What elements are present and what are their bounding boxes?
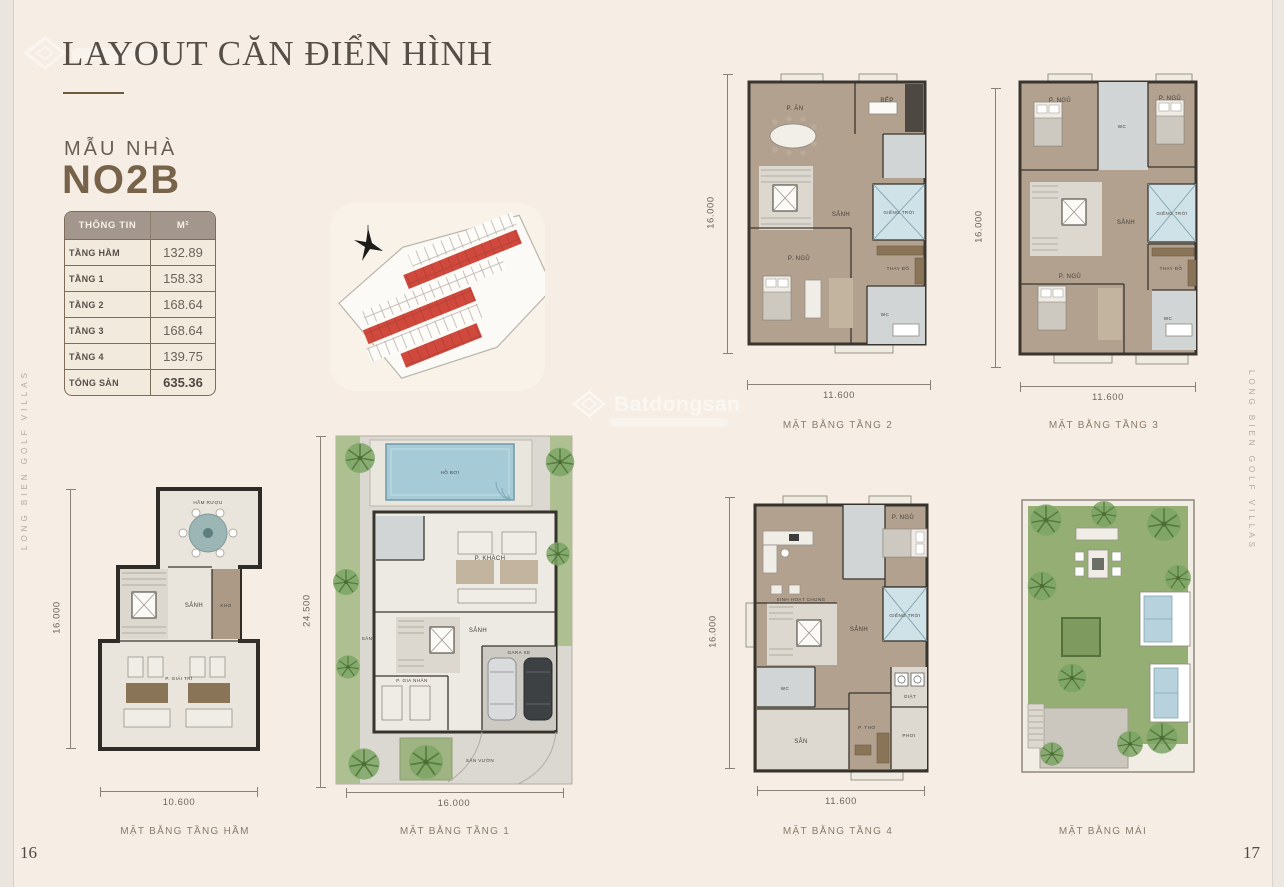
floor1-horizontal-dim (346, 792, 564, 793)
room-label-wc: WC (881, 312, 890, 317)
room-label-wc1: WC (1118, 124, 1127, 129)
page-number-left: 16 (20, 843, 37, 863)
bed (1156, 100, 1184, 144)
row-value: 168.64 (151, 318, 216, 344)
floor4-plan: SINH HOẠT CHUNG P. NGỦ GIẾNG TRỜI SẢNH W… (743, 493, 939, 783)
bed (883, 529, 927, 557)
floor4-vertical-dim (729, 497, 730, 769)
room-label-dressing: THAY ĐỒ (1160, 265, 1183, 271)
rug (1098, 288, 1122, 340)
floor3-horizontal-dim-label: 11.600 (1058, 392, 1158, 403)
roof-plan (1012, 490, 1204, 790)
floor2-caption: MẶT BẰNG TẦNG 2 (728, 420, 948, 431)
basement-caption: MẶT BẰNG TẦNG HẦM (75, 826, 295, 837)
room-label-dining: P. ĂN (787, 105, 804, 112)
room-label-worship: P. THỜ (858, 724, 875, 730)
row-label: TẦNG 3 (65, 318, 151, 344)
room-label-yard: SÂN (794, 738, 808, 745)
bed (1038, 286, 1066, 330)
basement-vertical-dim (70, 489, 71, 749)
page-number-right: 17 (1243, 843, 1260, 863)
floor2-vertical-dim (727, 74, 728, 354)
floor1-vertical-dim (320, 436, 321, 788)
room-label-hall: SẢNH (469, 627, 487, 634)
row-value: 139.75 (151, 344, 216, 370)
col-header-m2: M² (151, 212, 216, 240)
table-row: TẦNG 1 158.33 (65, 266, 215, 292)
basement-vertical-dim-label: 16.000 (52, 583, 63, 653)
outdoor-furniture (1075, 528, 1121, 578)
row-label: TẦNG 2 (65, 292, 151, 318)
floor3-caption: MẶT BẰNG TẦNG 3 (994, 420, 1214, 431)
row-value: 158.33 (151, 266, 216, 292)
room-label-pool: HỒ BƠI (441, 469, 460, 475)
floor4-caption: MẶT BẰNG TẦNG 4 (728, 826, 948, 837)
floor3-vertical-dim (995, 88, 996, 368)
basement-horizontal-dim (100, 791, 258, 792)
rug (829, 278, 853, 328)
floor1-vertical-dim-label: 24.500 (302, 576, 313, 646)
room-label-hall: SẢNH (832, 211, 850, 218)
center-watermark: Batdongsan (572, 390, 740, 420)
col-header-info: THÔNG TIN (65, 212, 151, 240)
room-label-skylight: GIẾNG TRỜI (883, 209, 914, 215)
roof-stairs (1028, 704, 1044, 748)
room-label-drying: PHƠI (902, 733, 915, 738)
bed (763, 276, 791, 320)
room-label-bedroom: P. NGỦ (892, 514, 914, 521)
table-row: TẦNG 4 139.75 (65, 344, 215, 370)
room-label-bedroom1: P. NGỦ (1049, 97, 1071, 104)
floor2-horizontal-dim-label: 11.600 (789, 390, 889, 401)
page-spine-left (0, 0, 14, 887)
floor1-horizontal-dim-label: 16.000 (404, 798, 504, 809)
side-text-right: LONG BIEN GOLF VILLAS (1247, 360, 1256, 560)
car (488, 658, 516, 720)
room-label-garden: SÂN VƯỜN (466, 757, 494, 763)
room-label-entertainment: P. GIẢI TRÍ (165, 675, 193, 681)
room-label-common: SINH HOẠT CHUNG (776, 597, 825, 602)
room-label-kitchen: BẾP (880, 97, 893, 104)
floor4-horizontal-dim (757, 790, 925, 791)
row-value: 132.89 (151, 240, 216, 266)
planter (1062, 618, 1100, 656)
table-row: TẦNG 2 168.64 (65, 292, 215, 318)
room-label-bedroom3: P. NGỦ (1059, 273, 1081, 280)
title-underline (63, 92, 124, 94)
basement-plan: HẦM RƯỢU SẢNH KHO P. GIẢI TRÍ (88, 487, 280, 755)
basement-horizontal-dim-label: 10.600 (129, 797, 229, 808)
floor1-caption: MẶT BẰNG TẦNG 1 (345, 826, 565, 837)
side-text-left: LONG BIEN GOLF VILLAS (20, 360, 29, 560)
room-label-living: P. KHÁCH (475, 555, 506, 562)
compass-icon (354, 225, 383, 261)
row-value: 168.64 (151, 292, 216, 318)
table-row: TẦNG HẦM 132.89 (65, 240, 215, 266)
room-label-garage: GARA XE (508, 650, 531, 655)
table-row-total: TỔNG SÀN 635.36 (65, 370, 215, 396)
model-name: NO2B (62, 158, 181, 203)
watermark-logo-icon (24, 36, 66, 70)
room-label-hall: SẢNH (185, 602, 203, 609)
watermark-subtext-faint (610, 418, 728, 427)
car (524, 658, 552, 720)
watermark-text: Batdongsan (614, 393, 740, 417)
room-label-wc1: WC (781, 686, 790, 691)
room-label-wine: HẦM RƯỢU (193, 499, 222, 505)
room-label-hall: SẢNH (1117, 219, 1135, 226)
room-label-laundry: GIẶT (904, 693, 916, 699)
room-label-skylight: GIẾNG TRỜI (889, 612, 920, 618)
bed (1034, 102, 1062, 146)
room-label-skylight: GIẾNG TRỜI (1156, 210, 1187, 216)
row-label: TẦNG 1 (65, 266, 151, 292)
room-label-bedroom: P. NGỦ (788, 255, 810, 262)
floor3-horizontal-dim (1020, 386, 1196, 387)
site-map (330, 203, 545, 391)
floor3-plan: P. NGỦ WC P. NGỦ SẢNH GIẾNG TRỜI P. NGỦ … (1008, 72, 1208, 367)
floor4-horizontal-dim-label: 11.600 (791, 796, 891, 807)
room-label-storage: KHO (220, 603, 231, 608)
table-header-row: THÔNG TIN M² (65, 212, 215, 240)
brochure-page: LAYOUT CĂN ĐIỂN HÌNH MẪU NHÀ NO2B THÔNG … (0, 0, 1284, 887)
site-plan (330, 203, 545, 391)
floor2-vertical-dim-label: 16.000 (706, 178, 717, 248)
room-label-wc2: WC (1164, 316, 1173, 321)
page-spine-right (1272, 0, 1284, 887)
roof-caption: MẶT BẰNG MÁI (993, 826, 1213, 837)
row-value: 635.36 (151, 370, 216, 396)
floor1-plan: HỒ BƠI P. KHÁCH SẢNH GARA XE P. GIA NHÂN… (330, 432, 578, 790)
room-label-hall: SẢNH (850, 626, 868, 633)
bathtub (893, 324, 919, 336)
room-label-dressing: THAY ĐỒ (887, 265, 910, 271)
table-row: TẦNG 3 168.64 (65, 318, 215, 344)
row-label: TẦNG 4 (65, 344, 151, 370)
floor2-horizontal-dim (747, 384, 931, 385)
room-label-maid: P. GIA NHÂN (396, 677, 427, 683)
floor2-plan: P. ĂN BẾP GIẾNG TRỜI SẢNH P. NGỦ THAY ĐỒ… (737, 72, 937, 355)
room-label-yard: SÂN (362, 635, 373, 641)
watermark-logo-icon (572, 390, 606, 420)
bathtub (1166, 324, 1192, 336)
row-label: TỔNG SÀN (65, 370, 151, 396)
room-label-bedroom2: P. NGỦ (1159, 95, 1181, 102)
page-title: LAYOUT CĂN ĐIỂN HÌNH (62, 34, 493, 74)
bench (805, 280, 821, 318)
info-table: THÔNG TIN M² TẦNG HẦM 132.89 TẦNG 1 158.… (64, 211, 216, 396)
floor3-vertical-dim-label: 16.000 (974, 192, 985, 262)
row-label: TẦNG HẦM (65, 240, 151, 266)
floor4-vertical-dim-label: 16.000 (708, 597, 719, 667)
